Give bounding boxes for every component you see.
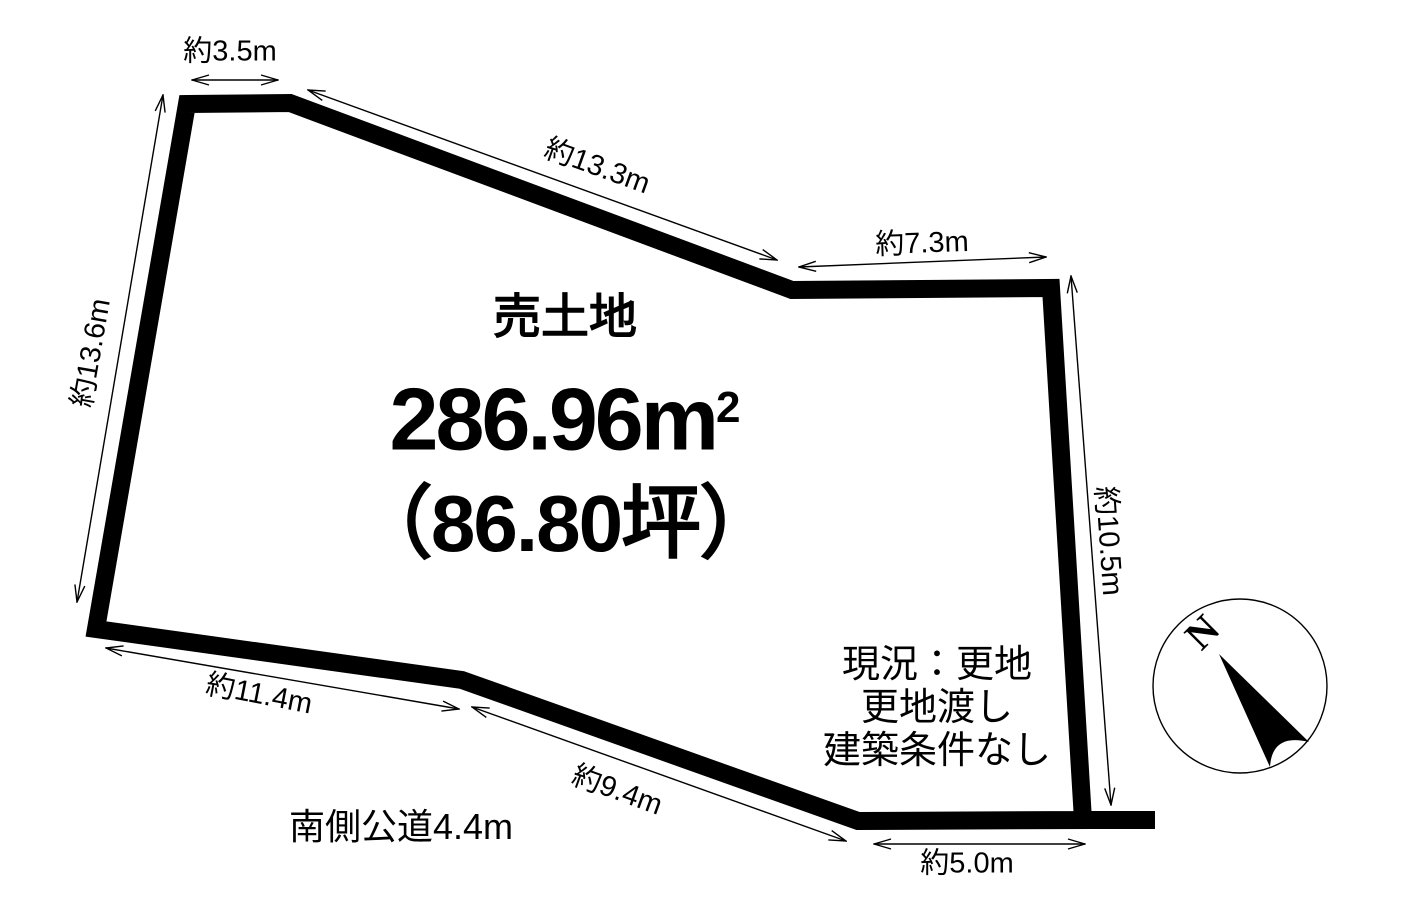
status-line-2: 更地渡し — [823, 687, 1051, 730]
dim-label-right-edge: 約10.5m — [1090, 485, 1127, 596]
dim-label-top-edge: 約3.5m — [183, 38, 276, 67]
land-area-tsubo: （86.80坪） — [353, 469, 777, 579]
area-unit-exponent: 2 — [716, 383, 740, 432]
land-area-m2: 286.96m2 — [353, 358, 777, 469]
parcel-title-block: 売土地 286.96m2 （86.80坪） — [353, 278, 777, 579]
dim-label-top-right-edge: 約7.3m — [875, 228, 969, 260]
road-label: 南側公道4.4m — [289, 809, 513, 845]
status-line-1: 現況：更地 — [823, 644, 1051, 687]
status-text-block: 現況：更地 更地渡し 建築条件なし — [823, 644, 1051, 773]
status-line-3: 建築条件なし — [823, 730, 1051, 773]
north-arrow-needle-icon — [1219, 654, 1309, 767]
area-unit: m — [641, 369, 716, 468]
dim-label-bottom-edge: 約5.0m — [920, 850, 1013, 879]
land-type-title: 売土地 — [353, 278, 777, 358]
land-plot-diagram: 約3.5m 約13.3m 約7.3m 約13.6m 約10.5m 約11.4m … — [0, 0, 1427, 917]
area-number: 286.96 — [390, 369, 641, 468]
